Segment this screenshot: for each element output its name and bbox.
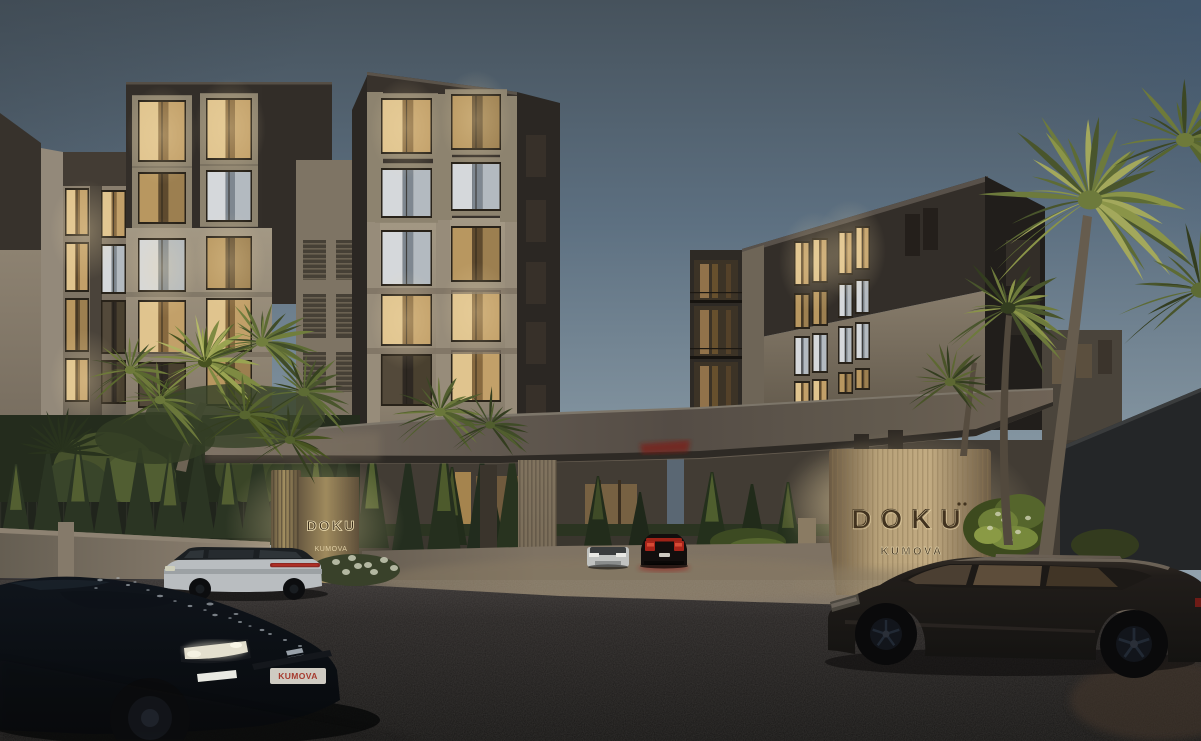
svg-text:KUMOVA: KUMOVA	[278, 671, 318, 681]
svg-text:DOKU: DOKU	[306, 518, 356, 534]
svg-text:KUMOVA: KUMOVA	[315, 546, 348, 553]
svg-text:KUMOVA: KUMOVA	[880, 546, 943, 558]
svg-text:DOKU: DOKU	[852, 504, 970, 535]
